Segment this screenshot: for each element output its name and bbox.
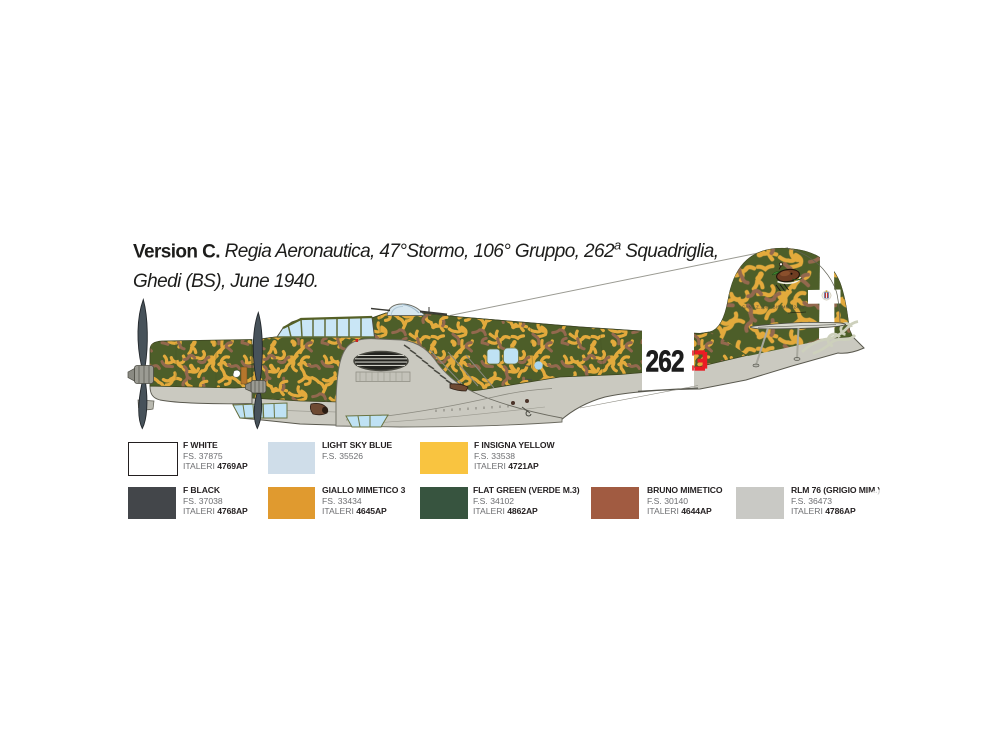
svg-text:CANT Z.1007 BIS MM 22459: CANT Z.1007 BIS MM 22459 — [742, 305, 805, 310]
svg-text:262: 262 — [646, 344, 685, 378]
